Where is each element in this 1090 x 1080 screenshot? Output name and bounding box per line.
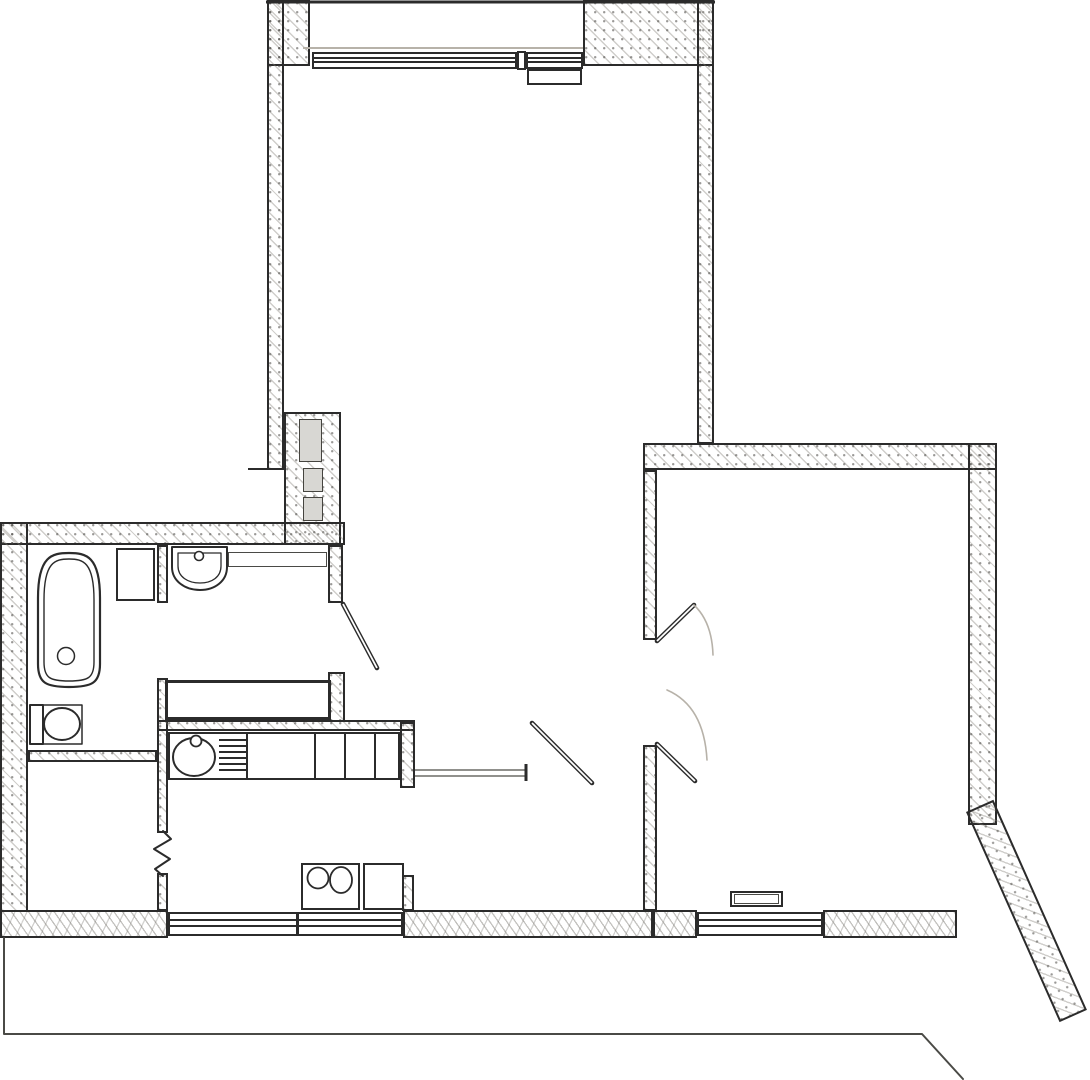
bathtub-inner [44,559,94,681]
wc-sink-inner [178,553,221,583]
bath-divider-wall-lower [157,873,168,911]
stove-burner-unit [301,863,360,910]
right-room-diagonal-wall [966,800,1087,1022]
right-room-door-leaf-lower-core [657,744,695,781]
stove-side-unit [363,863,404,910]
balcony-door-leaf [527,69,582,85]
hall-east-wall-upper [643,470,657,640]
toilet-bowl [44,708,80,740]
kitchen-north-wall [157,720,415,731]
balcony-window-right [526,52,583,69]
right-room-door-leaf-upper-core [657,605,694,641]
bathtub-drain [58,648,75,665]
hall-east-wall-lower [643,745,657,911]
door-swing-arc-lower [667,690,707,760]
vent-duct-small [303,497,323,521]
drainboard-bar-2 [219,745,247,747]
toilet-frame [30,705,82,744]
bath-divider-wall-upper [157,545,168,603]
kitchen-counter [168,732,400,780]
balcony-side-wall-right [583,0,714,66]
washing-machine [116,548,155,601]
floor-plan [0,0,1090,1080]
right-room-door-leaf-upper [657,605,694,641]
counter-divider-2 [314,734,316,779]
wc-east-wall-upper [328,545,343,603]
wall-break-zigzag [154,831,171,876]
hall-door-leaf-core [532,723,592,783]
drainboard-bar-3 [219,751,247,753]
living-room-left-wall [267,0,284,470]
counter-divider-3 [344,734,346,779]
right-room-top-wall [643,443,997,470]
terrace-outline [4,938,963,1079]
bath-south-wall [28,750,157,762]
bathtub-outer [38,553,100,687]
bottom-wall-right-b [823,910,957,938]
counter-divider-4 [374,734,376,779]
drainboard-bar-1 [219,739,247,741]
toilet-tank [30,705,43,744]
bottom-wall-hall [403,910,653,938]
right-room-right-wall [968,443,997,825]
bottom-wall-right-a [653,910,697,938]
bottom-wall-left [0,910,168,938]
kitchen-window-mullion [296,912,299,936]
right-room-window [697,912,823,936]
right-room-door-leaf-lower [657,744,695,781]
drainboard-bar-4 [219,757,247,759]
drainboard-bar-5 [219,763,247,765]
upper-left-outer-wall [0,522,345,545]
hall-door-leaf [532,723,592,783]
vent-duct-large [299,419,322,462]
radiator-inner [734,894,779,904]
vent-duct-mid [303,468,323,492]
balcony-window-mullion [517,51,526,70]
drainboard-bar-6 [219,769,247,771]
utility-shaft-box [165,680,331,720]
left-outer-wall [0,522,28,912]
wc-door-leaf-core [343,604,377,668]
kitchen-window [168,912,403,936]
wc-shelf [228,552,327,567]
door-swing-arc-upper [694,605,713,655]
wc-sink-outer [172,547,227,590]
living-room-right-wall [697,0,714,444]
kitchen-east-wall-upper [400,722,415,788]
wc-door-leaf [343,604,377,668]
balcony-window-left [312,52,517,69]
wc-sink-faucet [195,552,204,561]
